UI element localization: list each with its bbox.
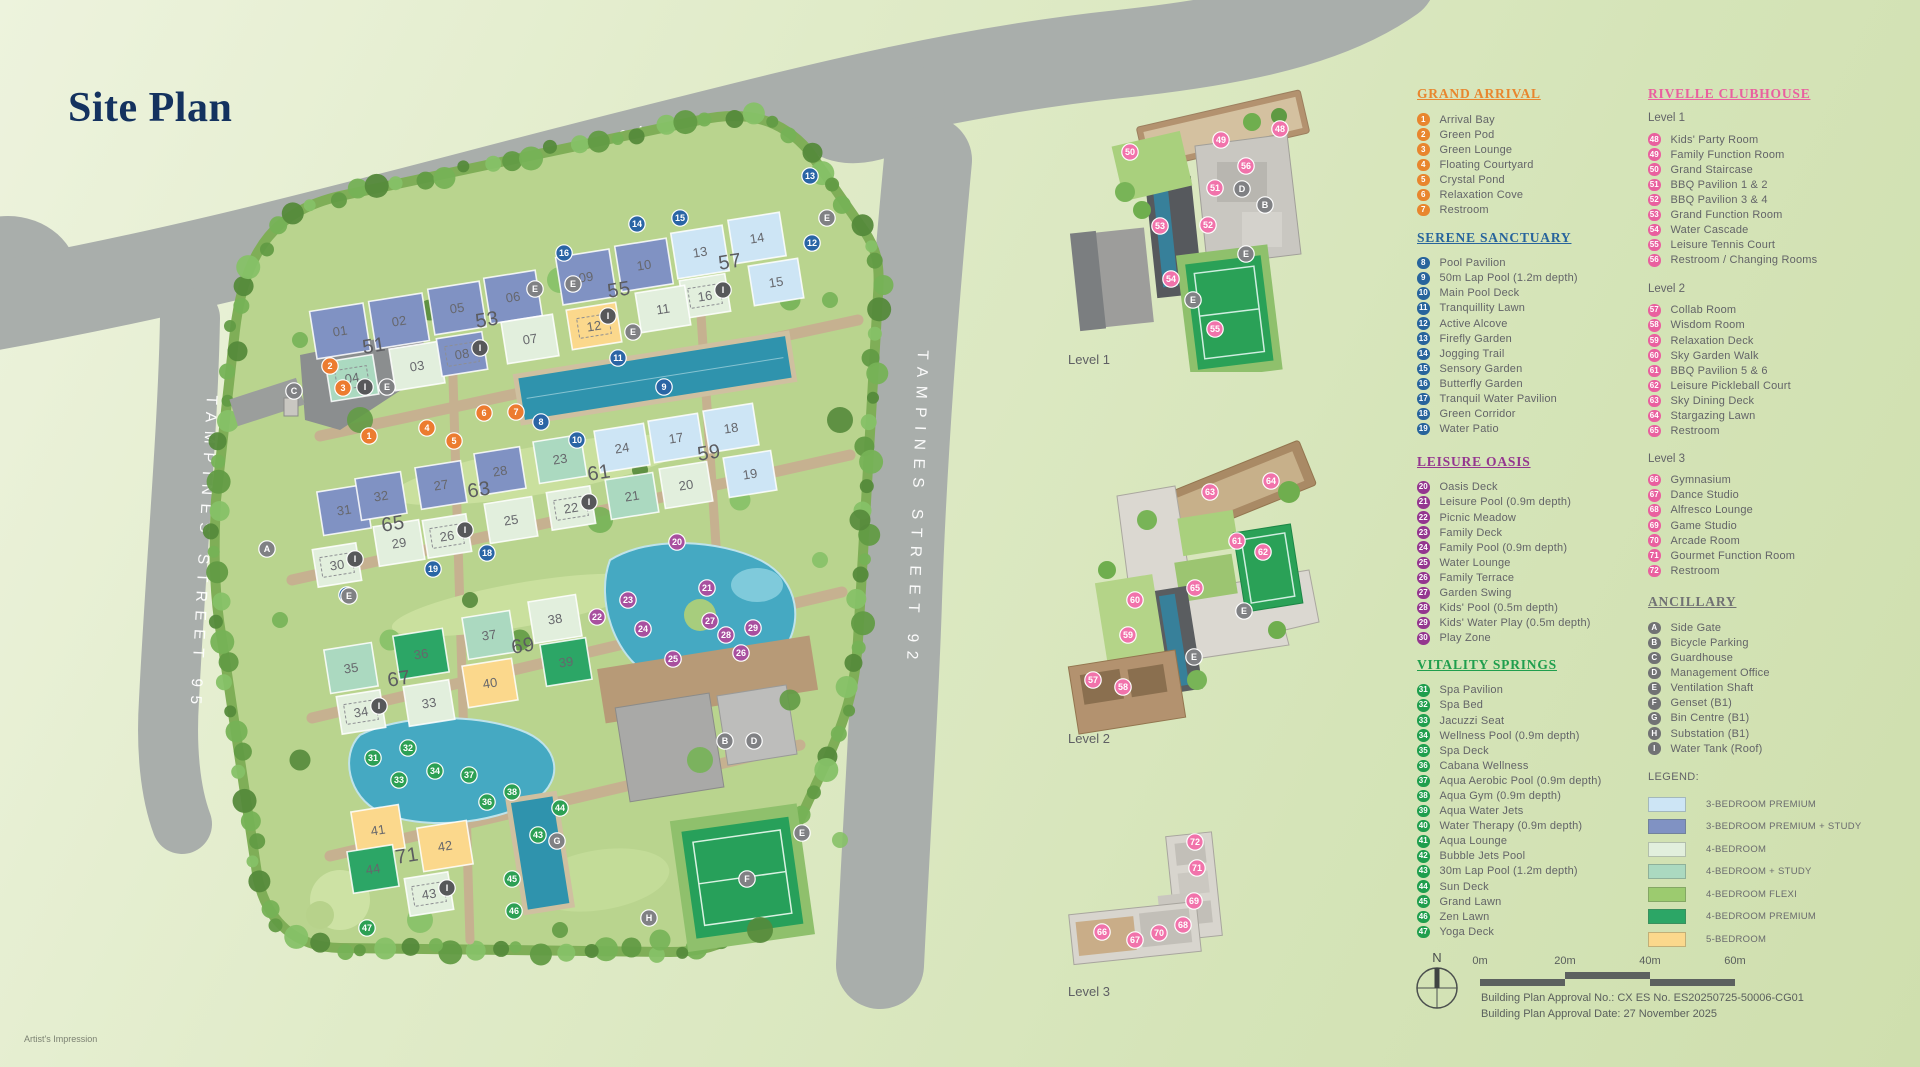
legend-item-label: Family Function Room (1671, 149, 1785, 161)
marker-I: I (371, 698, 387, 714)
block-number-67: 67 (386, 666, 412, 691)
marker-34: 34 (427, 763, 443, 779)
legend-item-badge: 47 (1417, 926, 1430, 939)
legend-item-badge: 31 (1417, 684, 1430, 697)
svg-text:26: 26 (736, 648, 746, 658)
legend-item-badge: 29 (1417, 617, 1430, 630)
legend-item-label: Restroom (1671, 565, 1720, 577)
legend-item-badge: 55 (1648, 239, 1661, 252)
building-42: 42 (417, 820, 473, 871)
svg-text:2: 2 (327, 361, 332, 371)
legend-item-badge: 44 (1417, 880, 1430, 893)
marker-23: 23 (620, 592, 636, 608)
svg-text:44: 44 (365, 860, 382, 877)
legend-item-label: Restroom (1440, 204, 1489, 216)
svg-text:36: 36 (482, 797, 492, 807)
section-grand-arrival: GRAND ARRIVAL 1Arrival Bay2Green Pod3Gre… (1417, 86, 1652, 218)
svg-text:38: 38 (507, 787, 517, 797)
clubhouse-level-2-label: Level 2 (1648, 283, 1883, 295)
svg-text:25: 25 (668, 654, 678, 664)
marker-B: B (1257, 197, 1273, 213)
legend-item-label: Bin Centre (B1) (1671, 712, 1750, 724)
svg-text:60: 60 (1130, 595, 1140, 605)
legend-item-label: Spa Deck (1440, 745, 1489, 757)
marker-4: 4 (419, 420, 435, 436)
legend-item: 49Family Function Room (1648, 147, 1883, 162)
svg-text:I: I (479, 343, 482, 353)
legend-item: 64Stargazing Lawn (1648, 409, 1883, 424)
legend-item-label: Family Deck (1440, 527, 1503, 539)
unit-legend-swatch (1648, 887, 1686, 902)
svg-text:E: E (1190, 295, 1196, 305)
building-11: 11 (635, 285, 691, 332)
svg-text:64: 64 (1266, 476, 1276, 486)
legend-item: 4330m Lap Pool (1.2m depth) (1417, 864, 1652, 879)
legend-item: 62Leisure Pickleball Court (1648, 378, 1883, 393)
svg-text:15: 15 (768, 273, 785, 290)
svg-text:E: E (532, 284, 538, 294)
svg-text:25: 25 (503, 511, 520, 528)
legend-item-label: Arcade Room (1671, 535, 1740, 547)
svg-text:27: 27 (433, 476, 450, 493)
legend-column-1: GRAND ARRIVAL 1Arrival Bay2Green Pod3Gre… (1417, 86, 1652, 939)
legend-item: 70Arcade Room (1648, 533, 1883, 548)
legend-item-label: Zen Lawn (1440, 911, 1490, 923)
svg-text:I: I (722, 285, 725, 295)
marker-36: 36 (479, 794, 495, 810)
svg-text:57: 57 (1088, 675, 1098, 685)
legend-item: 36Cabana Wellness (1417, 758, 1652, 773)
svg-text:34: 34 (430, 766, 440, 776)
legend-item-badge: 11 (1417, 302, 1430, 315)
marker-53: 53 (1152, 218, 1168, 234)
legend-item-badge: 36 (1417, 760, 1430, 773)
marker-6: 6 (476, 405, 492, 421)
legend-item: 51BBQ Pavilion 1 & 2 (1648, 177, 1883, 192)
svg-text:02: 02 (391, 312, 408, 329)
marker-45: 45 (504, 871, 520, 887)
legend-item-badge: 22 (1417, 511, 1430, 524)
svg-text:41: 41 (370, 821, 387, 838)
block-number-63: 63 (466, 477, 492, 502)
svg-text:I: I (364, 382, 367, 392)
legend-item-label: Ventilation Shaft (1671, 682, 1754, 694)
artists-impression-note: Artist's Impression (24, 1034, 97, 1044)
legend-item: 58Wisdom Room (1648, 318, 1883, 333)
svg-text:06: 06 (505, 288, 522, 305)
legend-item-badge: 24 (1417, 541, 1430, 554)
svg-text:26: 26 (439, 527, 456, 544)
legend-item-badge: 33 (1417, 714, 1430, 727)
svg-text:49: 49 (1216, 135, 1226, 145)
legend-item-label: Kids' Party Room (1671, 134, 1759, 146)
legend-item: 8Pool Pavilion (1417, 256, 1652, 271)
legend-item-label: Yoga Deck (1440, 926, 1495, 938)
svg-text:B: B (1262, 200, 1269, 210)
svg-text:12: 12 (807, 238, 817, 248)
unit-legend-label: 4-BEDROOM (1706, 844, 1766, 855)
legend-item-label: Leisure Tennis Court (1671, 239, 1776, 251)
svg-text:6: 6 (481, 408, 486, 418)
marker-56: 56 (1238, 158, 1254, 174)
svg-text:68: 68 (1178, 920, 1188, 930)
legend-item-label: Water Cascade (1671, 224, 1749, 236)
legend-item-badge: 14 (1417, 348, 1430, 361)
svg-text:B: B (722, 736, 729, 746)
legend-item-badge: A (1648, 622, 1661, 635)
scale-bar: 0m 20m 40m 60m (1462, 946, 1762, 994)
marker-20: 20 (669, 534, 685, 550)
legend-item: 6Relaxation Cove (1417, 187, 1652, 202)
svg-text:19: 19 (428, 564, 438, 574)
legend-item: 18Green Corridor (1417, 407, 1652, 422)
legend-item-badge: 30 (1417, 632, 1430, 645)
svg-text:63: 63 (1205, 487, 1215, 497)
marker-E: E (1185, 292, 1201, 308)
svg-text:61: 61 (1232, 536, 1242, 546)
marker-E: E (1238, 246, 1254, 262)
legend-item: CGuardhouse (1648, 651, 1883, 666)
legend-item-badge: 57 (1648, 304, 1661, 317)
svg-text:1: 1 (366, 431, 371, 441)
compass: N (1405, 948, 1469, 1014)
legend-item-label: Garden Swing (1440, 587, 1512, 599)
svg-text:E: E (384, 382, 390, 392)
unit-type-legend: LEGEND: 3-BEDROOM PREMIUM3-BEDROOM PREMI… (1648, 771, 1883, 951)
legend-item-badge: 37 (1417, 775, 1430, 788)
svg-text:07: 07 (522, 330, 539, 347)
building-39: 39 (540, 638, 592, 687)
svg-text:48: 48 (1275, 124, 1285, 134)
svg-text:11: 11 (655, 301, 671, 318)
unit-legend-swatch (1648, 932, 1686, 947)
marker-24: 24 (635, 621, 651, 637)
block-number-65: 65 (380, 511, 406, 536)
site-plan-page: TAMPINES STREET 94 TAMPINES STREET 95 TA… (0, 0, 1920, 1067)
legend-item: 59Relaxation Deck (1648, 333, 1883, 348)
svg-text:E: E (799, 828, 805, 838)
svg-text:F: F (744, 874, 750, 884)
marker-63: 63 (1202, 484, 1218, 500)
clubhouse-level-3-label: Level 3 (1648, 453, 1883, 465)
marker-12: 12 (804, 235, 820, 251)
legend-item-label: Wellness Pool (0.9m depth) (1440, 730, 1580, 742)
legend-item: 40Water Therapy (0.9m depth) (1417, 819, 1652, 834)
legend-item: 37Aqua Aerobic Pool (0.9m depth) (1417, 773, 1652, 788)
legend-item: 67Dance Studio (1648, 488, 1883, 503)
marker-66: 66 (1094, 924, 1110, 940)
marker-11: 11 (610, 350, 626, 366)
legend-item-label: Relaxation Cove (1440, 189, 1524, 201)
legend-item-label: Jogging Trail (1440, 348, 1505, 360)
legend-item-badge: 12 (1417, 317, 1430, 330)
marker-I: I (347, 551, 363, 567)
marker-I: I (581, 494, 597, 510)
legend-item-badge: 28 (1417, 602, 1430, 615)
legend-item-label: Restroom (1671, 425, 1720, 437)
legend-item-label: Picnic Meadow (1440, 512, 1517, 524)
legend-item-badge: 50 (1648, 163, 1661, 176)
marker-46: 46 (506, 903, 522, 919)
legend-item: 48Kids' Party Room (1648, 132, 1883, 147)
marker-52: 52 (1200, 217, 1216, 233)
marker-I: I (715, 282, 731, 298)
legend-item: 71Gourmet Function Room (1648, 548, 1883, 563)
section-rivelle-clubhouse-title: RIVELLE CLUBHOUSE (1648, 86, 1883, 102)
legend-item-label: Restroom / Changing Rooms (1671, 254, 1818, 266)
legend-item-label: Grand Function Room (1671, 209, 1783, 221)
svg-text:D: D (751, 736, 758, 746)
legend-item-label: Family Pool (0.9m depth) (1440, 542, 1568, 554)
svg-text:20: 20 (672, 537, 682, 547)
legend-item: GBin Centre (B1) (1648, 711, 1883, 726)
legend-item: 46Zen Lawn (1417, 909, 1652, 924)
svg-text:10: 10 (572, 435, 582, 445)
legend-item: 14Jogging Trail (1417, 346, 1652, 361)
marker-33: 33 (391, 772, 407, 788)
level-3-label: Level 3 (1068, 984, 1110, 999)
legend-item-badge: 38 (1417, 790, 1430, 803)
marker-E: E (1236, 603, 1252, 619)
unit-legend-label: 3-BEDROOM PREMIUM (1706, 799, 1816, 810)
marker-E: E (379, 379, 395, 395)
svg-text:01: 01 (332, 322, 349, 339)
building-20: 20 (659, 461, 713, 508)
legend-item: 47Yoga Deck (1417, 924, 1652, 939)
svg-text:E: E (1191, 652, 1197, 662)
unit-legend-swatch (1648, 797, 1686, 812)
legend-item: 24Family Pool (0.9m depth) (1417, 540, 1652, 555)
legend-item-label: Bicycle Parking (1671, 637, 1749, 649)
legend-item-label: Gourmet Function Room (1671, 550, 1796, 562)
legend-item: 21Leisure Pool (0.9m depth) (1417, 495, 1652, 510)
legend-item-badge: 18 (1417, 408, 1430, 421)
legend-item: 30Play Zone (1417, 631, 1652, 646)
svg-text:35: 35 (343, 659, 360, 676)
svg-text:34: 34 (353, 703, 370, 720)
svg-text:16: 16 (697, 287, 714, 304)
legend-item: 56Restroom / Changing Rooms (1648, 253, 1883, 268)
legend-item-label: Collab Room (1671, 304, 1737, 316)
legend-item: 31Spa Pavilion (1417, 683, 1652, 698)
marker-43: 43 (530, 827, 546, 843)
svg-text:37: 37 (464, 770, 474, 780)
legend-item-label: Sun Deck (1440, 881, 1489, 893)
svg-text:10: 10 (636, 256, 653, 273)
svg-text:50: 50 (1125, 147, 1135, 157)
legend-item: 55Leisure Tennis Court (1648, 238, 1883, 253)
legend-item-badge: 52 (1648, 194, 1661, 207)
block-number-57: 57 (717, 249, 743, 274)
svg-text:37: 37 (481, 626, 498, 643)
section-vitality-springs-title: VITALITY SPRINGS (1417, 657, 1652, 673)
legend-item-label: BBQ Pavilion 1 & 2 (1671, 179, 1768, 191)
section-grand-arrival-title: GRAND ARRIVAL (1417, 86, 1652, 102)
marker-I: I (600, 308, 616, 324)
svg-text:8: 8 (538, 417, 543, 427)
svg-text:29: 29 (391, 534, 408, 551)
legend-item-label: BBQ Pavilion 5 & 6 (1671, 365, 1768, 377)
svg-text:I: I (588, 497, 591, 507)
legend-item: 54Water Cascade (1648, 223, 1883, 238)
legend-item-badge: 13 (1417, 332, 1430, 345)
approval-line-2: Building Plan Approval Date: 27 November… (1481, 1006, 1804, 1022)
building-19: 19 (723, 450, 777, 497)
legend-item-label: Cabana Wellness (1440, 760, 1529, 772)
svg-text:22: 22 (592, 612, 602, 622)
legend-item-label: Floating Courtyard (1440, 159, 1534, 171)
legend-column-2: RIVELLE CLUBHOUSE Level 1 48Kids' Party … (1648, 86, 1883, 951)
legend-item-badge: 15 (1417, 363, 1430, 376)
legend-item-badge: G (1648, 712, 1661, 725)
marker-60: 60 (1127, 592, 1143, 608)
legend-item-label: Water Tank (Roof) (1671, 743, 1763, 755)
marker-13: 13 (802, 168, 818, 184)
legend-item-label: Sky Garden Walk (1671, 350, 1759, 362)
legend-item-label: Leisure Pool (0.9m depth) (1440, 496, 1572, 508)
svg-text:39: 39 (558, 653, 575, 670)
marker-62: 62 (1255, 544, 1271, 560)
legend-item: 52BBQ Pavilion 3 & 4 (1648, 192, 1883, 207)
legend-item-badge: 8 (1417, 257, 1430, 270)
svg-text:E: E (824, 213, 830, 223)
marker-57: 57 (1085, 672, 1101, 688)
legend-item-label: Main Pool Deck (1440, 287, 1520, 299)
legend-item: 5Crystal Pond (1417, 172, 1652, 187)
legend-item-label: Wisdom Room (1671, 319, 1745, 331)
marker-68: 68 (1175, 917, 1191, 933)
marker-47: 47 (359, 920, 375, 936)
legend-item-label: Dance Studio (1671, 489, 1739, 501)
marker-8: 8 (533, 414, 549, 430)
marker-59: 59 (1120, 627, 1136, 643)
legend-item: 41Aqua Lounge (1417, 834, 1652, 849)
svg-text:22: 22 (563, 499, 580, 516)
legend-item-badge: 58 (1648, 319, 1661, 332)
svg-text:38: 38 (547, 610, 564, 627)
block-number-59: 59 (696, 440, 722, 465)
legend-item-badge: 26 (1417, 572, 1430, 585)
marker-64: 64 (1263, 473, 1279, 489)
legend-item-label: Play Zone (1440, 632, 1491, 644)
svg-text:19: 19 (742, 465, 759, 482)
legend-item-label: Water Patio (1440, 423, 1499, 435)
marker-65: 65 (1187, 580, 1203, 596)
legend-item: ASide Gate (1648, 620, 1883, 635)
marker-7: 7 (508, 404, 524, 420)
unit-legend-row: 3-BEDROOM PREMIUM (1648, 793, 1883, 816)
legend-item-badge: 66 (1648, 474, 1661, 487)
marker-51: 51 (1207, 180, 1223, 196)
legend-item: 35Spa Deck (1417, 743, 1652, 758)
svg-text:I: I (378, 701, 381, 711)
legend-item: 42Bubble Jets Pool (1417, 849, 1652, 864)
legend-item: 39Aqua Water Jets (1417, 804, 1652, 819)
legend-item-badge: 46 (1417, 911, 1430, 924)
svg-text:58: 58 (1118, 682, 1128, 692)
building-44: 44 (347, 845, 399, 894)
legend-item: 17Tranquil Water Pavilion (1417, 392, 1652, 407)
svg-text:28: 28 (492, 462, 509, 479)
unit-legend-row: 3-BEDROOM PREMIUM + STUDY (1648, 816, 1883, 839)
legend-item-badge: 2 (1417, 128, 1430, 141)
marker-E: E (565, 276, 581, 292)
legend-item-label: Sky Dining Deck (1671, 395, 1755, 407)
scale-tick-20: 20m (1554, 955, 1575, 967)
marker-27: 27 (702, 613, 718, 629)
legend-item-label: Aqua Gym (0.9m depth) (1440, 790, 1562, 802)
legend-item: 69Game Studio (1648, 518, 1883, 533)
svg-text:43: 43 (421, 885, 438, 902)
svg-text:51: 51 (1210, 183, 1220, 193)
scale-tick-0: 0m (1472, 955, 1487, 967)
svg-text:E: E (346, 591, 352, 601)
marker-H: H (641, 910, 657, 926)
legend-item-badge: 63 (1648, 395, 1661, 408)
legend-item: 53Grand Function Room (1648, 207, 1883, 222)
scale-tick-40: 40m (1639, 955, 1660, 967)
svg-text:71: 71 (1192, 863, 1202, 873)
svg-text:7: 7 (513, 407, 518, 417)
marker-G: G (549, 833, 565, 849)
marker-1: 1 (361, 428, 377, 444)
legend-item-label: Management Office (1671, 667, 1770, 679)
legend-item-badge: 34 (1417, 729, 1430, 742)
level-2-plan: 646361626560E59E5758 (1047, 430, 1337, 745)
section-vitality-springs: VITALITY SPRINGS 31Spa Pavilion32Spa Bed… (1417, 657, 1652, 940)
legend-item-label: Jacuzzi Seat (1440, 715, 1505, 727)
legend-item: HSubstation (B1) (1648, 726, 1883, 741)
legend-item: 19Water Patio (1417, 422, 1652, 437)
svg-text:3: 3 (340, 383, 345, 393)
legend-item: 22Picnic Meadow (1417, 510, 1652, 525)
legend-item-badge: 1 (1417, 113, 1430, 126)
legend-item-badge: 69 (1648, 519, 1661, 532)
legend-item-badge: 39 (1417, 805, 1430, 818)
building-27: 27 (415, 461, 467, 510)
svg-text:43: 43 (533, 830, 543, 840)
legend-item-badge: 64 (1648, 410, 1661, 423)
marker-A: A (259, 541, 275, 557)
marker-C: C (286, 383, 302, 399)
svg-text:36: 36 (413, 645, 430, 662)
svg-text:05: 05 (449, 299, 466, 316)
legend-item-badge: 59 (1648, 334, 1661, 347)
marker-D: D (1234, 181, 1250, 197)
legend-item: 23Family Deck (1417, 525, 1652, 540)
legend-item-badge: B (1648, 637, 1661, 650)
section-leisure-oasis: LEISURE OASIS 20Oasis Deck21Leisure Pool… (1417, 454, 1652, 646)
legend-item-badge: 16 (1417, 378, 1430, 391)
block-number-51: 51 (361, 333, 387, 358)
section-serene-sanctuary-title: SERENE SANCTUARY (1417, 230, 1652, 246)
marker-I: I (357, 379, 373, 395)
svg-text:03: 03 (409, 357, 426, 374)
legend-item: 32Spa Bed (1417, 698, 1652, 713)
svg-text:15: 15 (675, 213, 685, 223)
legend-item-badge: 3 (1417, 143, 1430, 156)
legend-item-label: Kids' Water Play (0.5m depth) (1440, 617, 1591, 629)
svg-text:33: 33 (421, 694, 438, 711)
compass-needle (1435, 968, 1440, 988)
marker-22: 22 (589, 609, 605, 625)
legend-item: FGenset (B1) (1648, 696, 1883, 711)
marker-58: 58 (1115, 679, 1131, 695)
legend-item-badge: 49 (1648, 148, 1661, 161)
legend-item: 20Oasis Deck (1417, 480, 1652, 495)
building-07: 07 (501, 314, 559, 364)
legend-item-badge: 27 (1417, 587, 1430, 600)
